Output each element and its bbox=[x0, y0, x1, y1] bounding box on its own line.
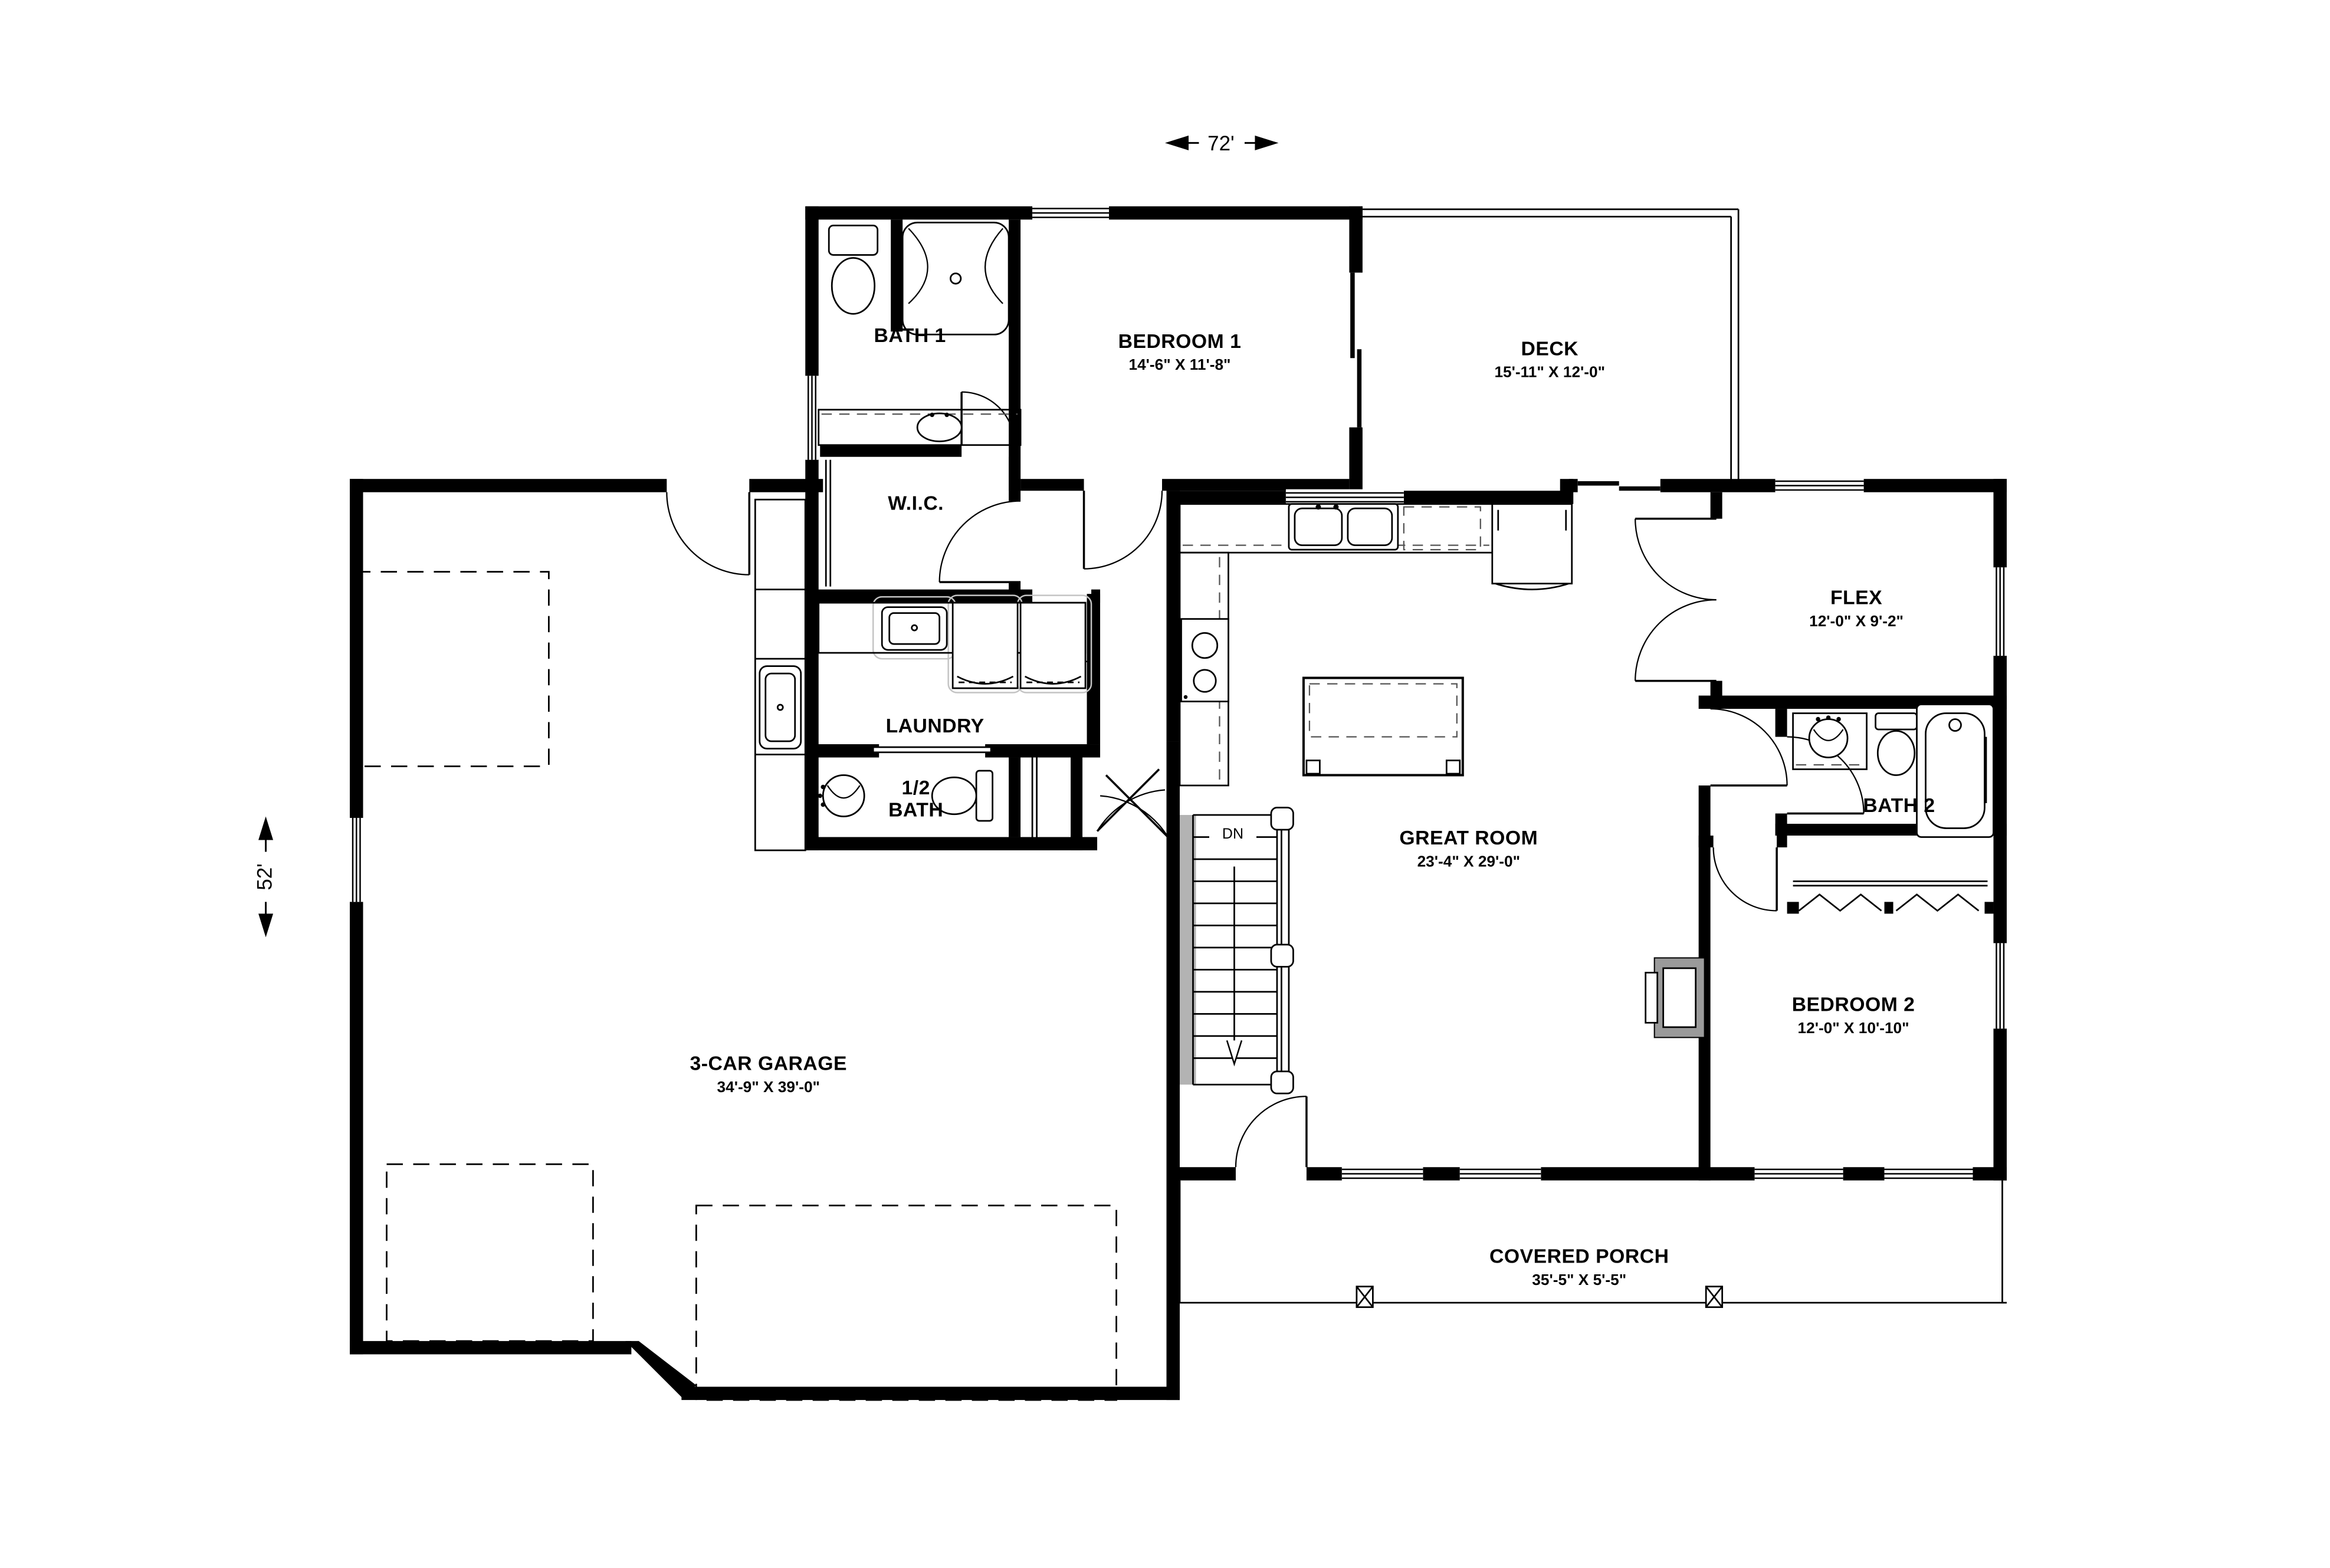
bath2-fixtures bbox=[1793, 705, 1994, 837]
room-labels: BATH 1 BEDROOM 1 14'-6" X 11'-8" DECK 15… bbox=[690, 324, 1935, 1288]
garage-utility-sink-icon bbox=[760, 666, 801, 749]
garage-ceiling-dashed-1 bbox=[355, 572, 549, 767]
range-icon bbox=[1181, 619, 1228, 702]
newel-post bbox=[1271, 1071, 1293, 1093]
room-dims-bedroom1: 14'-6" X 11'-8" bbox=[1128, 356, 1230, 373]
doors-entry-vestibule bbox=[1097, 770, 1168, 837]
window-bedroom1-top bbox=[1032, 205, 1109, 221]
window-bedroom2-east bbox=[1992, 943, 2008, 1028]
room-dims-garage: 34'-9" X 39'-0" bbox=[717, 1078, 820, 1096]
room-label-bedroom1: BEDROOM 1 bbox=[1118, 330, 1242, 353]
window-kitchen-top bbox=[1286, 489, 1404, 505]
room-dims-deck: 15'-11" X 12'-0" bbox=[1494, 363, 1605, 381]
newel-post bbox=[1271, 807, 1293, 829]
door-bedroom1 bbox=[1084, 491, 1162, 568]
room-label-great-room: GREAT ROOM bbox=[1399, 827, 1538, 849]
dryer-icon bbox=[1020, 603, 1085, 688]
room-label-bath2: BATH 2 bbox=[1863, 794, 1935, 817]
porch-post-2 bbox=[1706, 1287, 1722, 1307]
window-flex-top bbox=[1776, 478, 1864, 494]
window-flex-east bbox=[1992, 567, 2008, 656]
kitchen-fixtures bbox=[1180, 504, 1572, 785]
door-porch bbox=[1236, 1096, 1307, 1167]
door-wic bbox=[940, 501, 1020, 582]
shower-icon bbox=[903, 222, 1009, 334]
garage-utility-counter bbox=[755, 499, 805, 850]
room-dims-covered-porch: 35'-5" X 5'-5" bbox=[1532, 1271, 1626, 1288]
room-label-garage: 3-CAR GARAGE bbox=[690, 1052, 847, 1074]
staircase: DN bbox=[1180, 807, 1293, 1093]
room-label-half-bath-line1: 1/2 bbox=[901, 777, 930, 799]
slider-bedroom1-to-deck bbox=[1348, 272, 1364, 427]
overall-height-dimension: 52' bbox=[254, 816, 277, 937]
sink-icon bbox=[1809, 719, 1847, 758]
overall-width-dimension: 72' bbox=[1165, 132, 1278, 155]
bath1-vanity bbox=[819, 410, 1020, 445]
room-label-laundry: LAUNDRY bbox=[886, 715, 984, 737]
room-label-flex: FLEX bbox=[1830, 587, 1882, 609]
window-garage-left bbox=[349, 818, 365, 902]
room-label-bedroom2: BEDROOM 2 bbox=[1792, 993, 1915, 1015]
exterior-and-interior-walls bbox=[350, 206, 2007, 1400]
pedestal-sink-icon bbox=[818, 775, 864, 817]
door-wic-to-bath1 bbox=[961, 392, 1015, 445]
room-label-covered-porch: COVERED PORCH bbox=[1489, 1245, 1669, 1268]
french-doors-flex bbox=[1635, 519, 1716, 681]
kitchen-island bbox=[1304, 678, 1463, 775]
window-bedroom2-south-2 bbox=[1885, 1166, 1973, 1182]
washer-icon bbox=[953, 603, 1018, 688]
overall-width-label: 72' bbox=[1207, 132, 1235, 155]
stairs-direction-label: DN bbox=[1222, 826, 1243, 842]
toilet-icon bbox=[829, 225, 877, 314]
wic-details bbox=[826, 460, 830, 587]
room-dims-great-room: 23'-4" X 29'-0" bbox=[1417, 852, 1520, 870]
room-dims-flex: 12'-0" X 9'-2" bbox=[1809, 612, 1904, 630]
floor-plan-canvas: DN 72' 52' BATH 1 BEDROOM 1 14'-6" X 11'… bbox=[0, 0, 2330, 1568]
door-bedroom2 bbox=[1714, 847, 1777, 910]
window-bedroom2-south-1 bbox=[1755, 1166, 1843, 1182]
laundry-sink-icon bbox=[882, 607, 947, 650]
garage-door-dashed bbox=[696, 1205, 1116, 1400]
room-label-bath1: BATH 1 bbox=[874, 324, 946, 347]
laundry-fixtures bbox=[819, 596, 1091, 693]
dishwasher-icon bbox=[1404, 507, 1481, 550]
room-label-wic: W.I.C. bbox=[888, 492, 944, 515]
bathtub-icon bbox=[1917, 705, 1994, 837]
newel-post bbox=[1271, 945, 1293, 967]
slider-dinette-to-deck bbox=[1578, 478, 1660, 494]
garage-ceiling-dashed-2 bbox=[386, 1164, 593, 1341]
room-dims-bedroom2: 12'-0" X 10'-10" bbox=[1798, 1019, 1909, 1037]
fireplace-icon bbox=[1646, 958, 1705, 1037]
window-greatroom-south-1 bbox=[1342, 1166, 1423, 1182]
refrigerator-icon bbox=[1492, 504, 1572, 590]
window-greatroom-south-2 bbox=[1460, 1166, 1541, 1182]
bedroom2-closet bbox=[1793, 881, 1988, 885]
window-bath1-left bbox=[804, 376, 820, 459]
kitchen-sink-icon bbox=[1289, 504, 1398, 550]
overall-height-label: 52' bbox=[254, 863, 277, 890]
bath2-vanity bbox=[1793, 714, 1867, 770]
pocket-door-half-bath bbox=[873, 747, 991, 752]
porch-post-1 bbox=[1357, 1287, 1373, 1307]
toilet-icon bbox=[1876, 714, 1917, 775]
door-garage-entry bbox=[667, 492, 749, 575]
sink-icon bbox=[917, 413, 961, 441]
room-label-half-bath-line2: BATH bbox=[888, 798, 943, 821]
room-label-deck: DECK bbox=[1521, 337, 1579, 360]
